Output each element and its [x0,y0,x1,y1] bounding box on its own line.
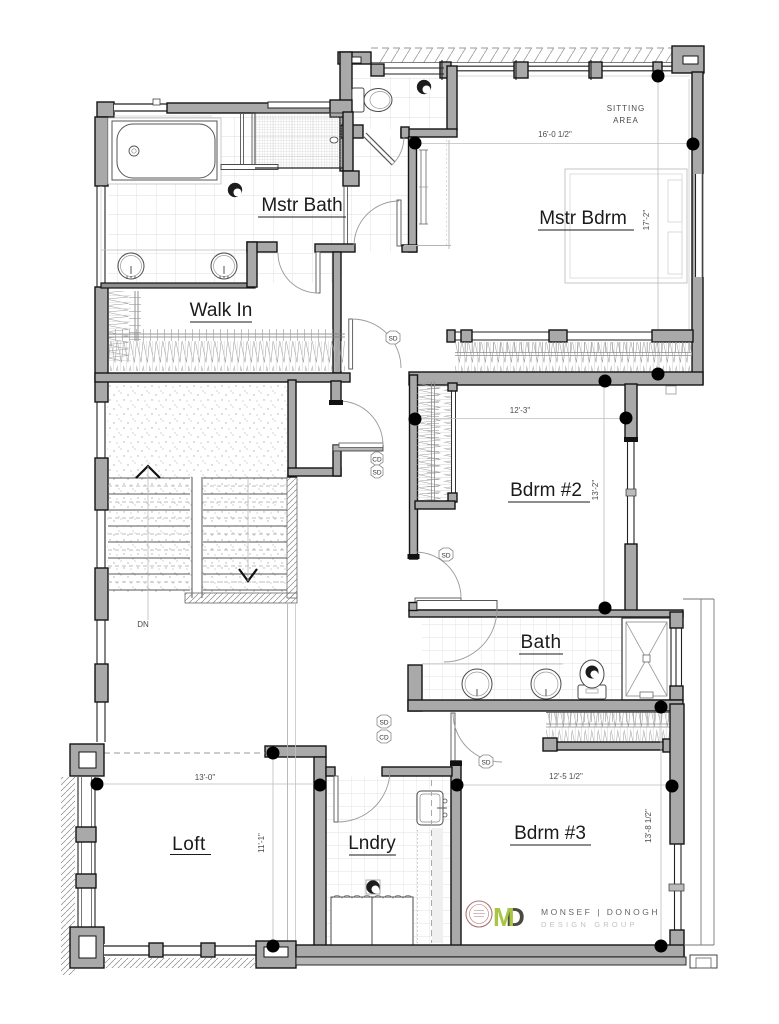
svg-text:Mstr Bath: Mstr Bath [261,195,342,216]
svg-text:11'-1": 11'-1" [257,833,266,853]
svg-text:DESIGN GROUP: DESIGN GROUP [541,920,638,929]
svg-text:MONSEF | DONOGH: MONSEF | DONOGH [541,907,660,917]
svg-text:17'-2": 17'-2" [642,210,651,231]
svg-text:Bath: Bath [520,632,561,653]
svg-text:13'-8 1/2": 13'-8 1/2" [644,809,653,843]
svg-text:12'-3": 12'-3" [510,406,531,415]
svg-text:SD: SD [441,553,450,560]
svg-text:Lndry: Lndry [348,833,396,854]
svg-text:13'-2": 13'-2" [591,480,600,501]
svg-text:SD: SD [388,336,397,343]
svg-text:SITTING: SITTING [607,104,646,113]
svg-text:DN: DN [137,620,149,629]
svg-text:13'-0": 13'-0" [195,773,216,782]
svg-text:AREA: AREA [613,116,639,125]
svg-text:Bdrm #2: Bdrm #2 [510,480,582,501]
svg-text:SD: SD [481,760,490,767]
svg-text:SD: SD [379,720,388,727]
svg-text:Loft: Loft [172,834,206,855]
svg-text:12'-5 1/2": 12'-5 1/2" [549,772,583,781]
svg-text:M: M [493,902,515,932]
svg-text:Walk In: Walk In [190,300,253,321]
svg-text:CD: CD [372,457,382,464]
svg-text:Bdrm #3: Bdrm #3 [514,823,586,844]
svg-text:16'-0 1/2": 16'-0 1/2" [538,130,572,139]
svg-text:Mstr Bdrm: Mstr Bdrm [539,208,627,229]
svg-text:CD: CD [379,735,389,742]
svg-text:SD: SD [372,470,381,477]
